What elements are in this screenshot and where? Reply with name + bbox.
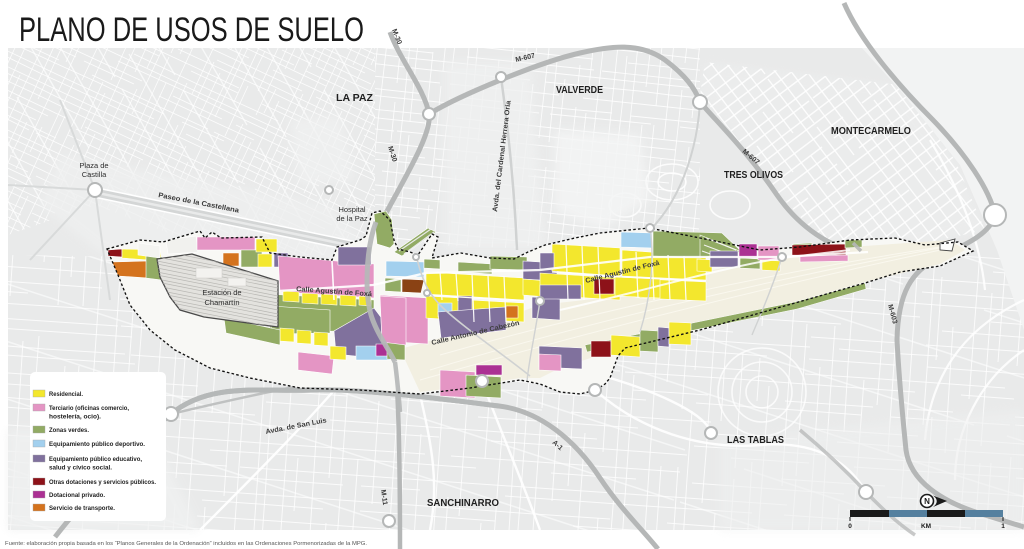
svg-text:salud y cívico social.: salud y cívico social. [49, 465, 112, 472]
svg-text:Otras dotaciones y servicios p: Otras dotaciones y servicios públicos. [49, 479, 156, 486]
svg-text:TRES OLIVOS: TRES OLIVOS [724, 170, 783, 181]
svg-text:Terciario (oficinas comercio,: Terciario (oficinas comercio, [49, 405, 129, 412]
svg-text:Servicio de transporte.: Servicio de transporte. [49, 505, 115, 512]
svg-text:Zonas verdes.: Zonas verdes. [49, 427, 89, 434]
svg-text:PLANO DE USOS DE SUELO: PLANO DE USOS DE SUELO [19, 11, 364, 49]
svg-text:Fuente: elaboración propia bas: Fuente: elaboración propia basada en los… [5, 541, 367, 547]
svg-text:Chamartín: Chamartín [204, 298, 239, 307]
svg-text:Equipamiento público deportivo: Equipamiento público deportivo. [49, 441, 145, 448]
svg-text:Estación de: Estación de [202, 288, 241, 297]
svg-text:de la Paz: de la Paz [336, 214, 368, 223]
svg-text:0: 0 [848, 523, 852, 530]
svg-text:SANCHINARRO: SANCHINARRO [427, 498, 499, 509]
svg-text:Hospital: Hospital [338, 205, 365, 214]
svg-text:KM: KM [921, 523, 931, 530]
svg-text:hostelería, ocio).: hostelería, ocio). [49, 414, 101, 421]
svg-text:Equipamiento público educativo: Equipamiento público educativo, [49, 456, 142, 463]
svg-text:Castilla: Castilla [82, 170, 107, 179]
svg-text:N: N [924, 497, 930, 506]
svg-text:LAS TABLAS: LAS TABLAS [727, 435, 784, 446]
svg-text:Dotacional privado.: Dotacional privado. [49, 492, 105, 499]
svg-text:VALVERDE: VALVERDE [556, 85, 603, 96]
svg-text:LA PAZ: LA PAZ [336, 93, 373, 104]
svg-text:Residencial.: Residencial. [49, 391, 83, 398]
svg-text:Plaza de: Plaza de [79, 161, 108, 170]
svg-text:1: 1 [1001, 523, 1005, 530]
svg-text:MONTECARMELO: MONTECARMELO [831, 126, 911, 137]
